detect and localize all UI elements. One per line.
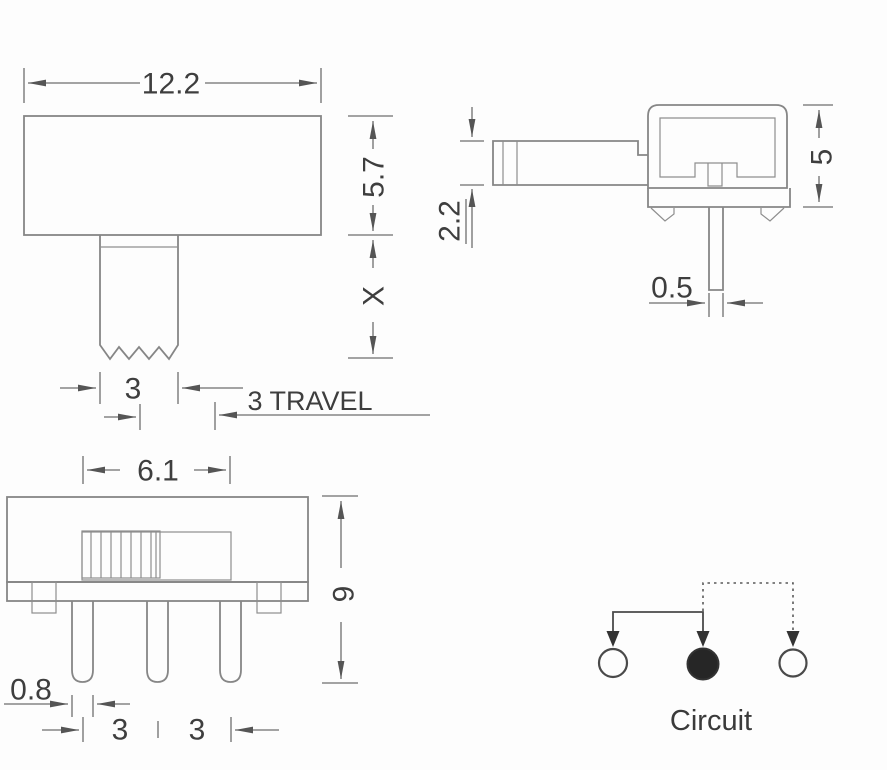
top-pin-width-label: 0.8 [10, 674, 52, 707]
side-pin [709, 207, 723, 290]
dimension-slot-width: 6.1 [83, 455, 230, 488]
side-base-band [648, 188, 790, 207]
top-total-height-label: 9 [328, 586, 361, 603]
circuit-terminal-common [688, 649, 719, 680]
side-view: 2.2 5 0.5 [434, 105, 839, 317]
front-view: 12.2 5.7 X 3 [24, 68, 430, 431]
circuit-dashed-path [703, 583, 793, 630]
front-body-height-label: 5.7 [358, 156, 391, 198]
dimension-body-width: 12.2 [24, 68, 321, 104]
circuit-diagram: Circuit [599, 583, 807, 737]
side-right-foot [761, 208, 784, 221]
side-lever-thickness-label: 2.2 [434, 200, 467, 242]
front-width-label: 12.2 [142, 68, 200, 101]
top-right-tab [257, 582, 281, 613]
front-stem-height-label: X [358, 286, 391, 306]
dimension-side-height: 5 [803, 105, 839, 207]
dimension-total-height: 9 [322, 496, 361, 683]
top-left-tab [32, 582, 56, 613]
side-pin-width-label: 0.5 [651, 272, 693, 305]
circuit-arrow-right [787, 631, 800, 647]
front-travel-label: 3 TRAVEL [247, 386, 372, 416]
top-body-outline [7, 497, 308, 582]
dimension-pin-width-top: 0.8 [4, 674, 130, 718]
top-flange [7, 582, 308, 601]
side-cavity-outline [660, 118, 775, 177]
top-slot-width-label: 6.1 [137, 455, 179, 488]
front-actuator-stem [100, 235, 178, 359]
top-pitch2-label: 3 [189, 714, 206, 747]
front-body-outline [24, 116, 321, 235]
dimension-lever-thickness: 2.2 [434, 107, 485, 248]
drawing-svg: 12.2 5.7 X 3 [0, 0, 887, 770]
circuit-terminal-left [599, 649, 627, 677]
dimension-stem-width: 3 [60, 372, 243, 406]
side-pin-slot [708, 163, 722, 186]
side-height-label: 5 [806, 149, 839, 166]
top-pins [72, 601, 241, 682]
side-left-foot [651, 208, 674, 221]
dimension-pin-pitch: 3 3 [42, 714, 279, 747]
top-pitch1-label: 3 [112, 714, 129, 747]
dimension-travel: 3 TRAVEL [104, 386, 430, 430]
circuit-arrow-left [607, 631, 620, 647]
top-view: 6.1 9 0.8 3 3 [4, 455, 361, 747]
side-lever [493, 141, 648, 185]
dimension-pin-width-side: 0.5 [649, 272, 763, 318]
circuit-solid-path [613, 612, 703, 634]
circuit-arrow-middle [697, 631, 710, 647]
technical-drawing: 12.2 5.7 X 3 [0, 0, 887, 770]
top-knob-ribbed [82, 531, 160, 578]
front-stem-width-label: 3 [125, 373, 142, 406]
dimension-body-height: 5.7 [348, 116, 393, 235]
dimension-stem-height: X [348, 240, 393, 358]
circuit-terminal-right [780, 650, 807, 677]
circuit-caption: Circuit [670, 705, 752, 737]
